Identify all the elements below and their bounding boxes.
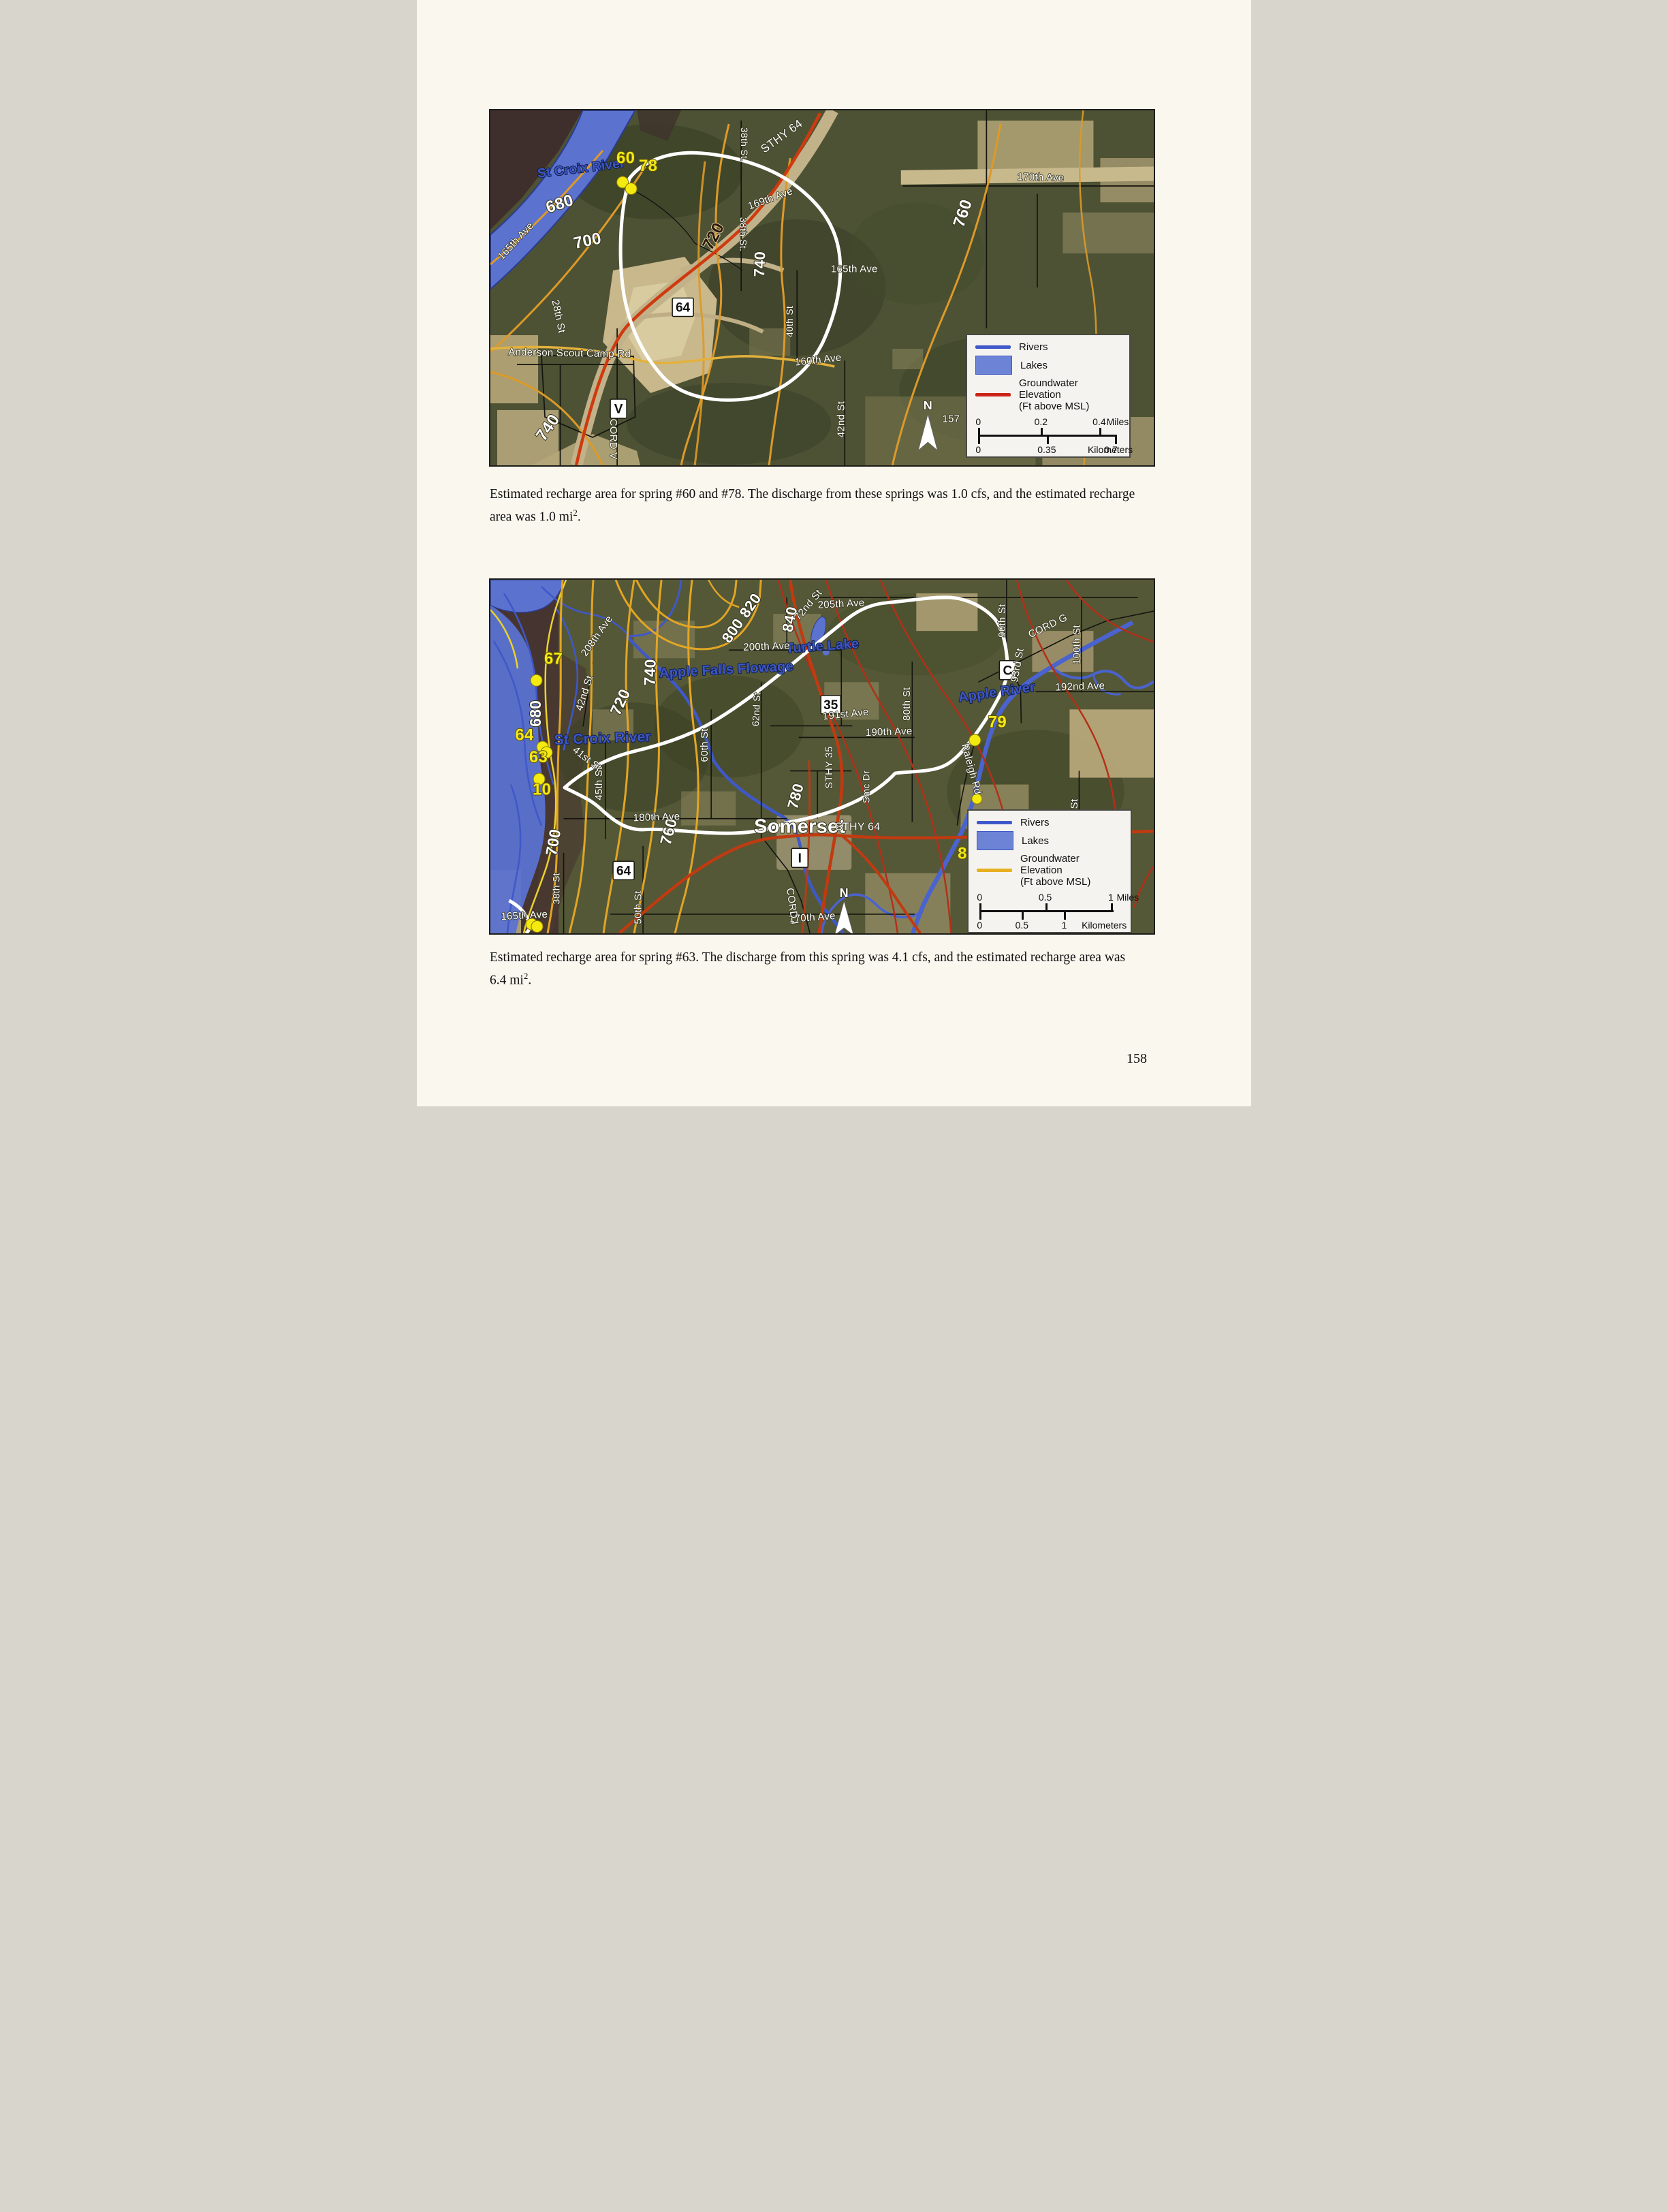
legend-rivers-row: Rivers — [975, 341, 1121, 353]
scale-km-mid: 0.35 — [1037, 444, 1056, 455]
svg-text:I: I — [798, 852, 802, 866]
map-label-157: 157 — [942, 414, 960, 425]
map-label-n: N — [924, 399, 932, 412]
figure-2-caption: Estimated recharge area for spring #63. … — [490, 948, 1145, 990]
map-label-100th-st: 100th St — [1071, 625, 1082, 665]
scale-km-labels: 0 0.35 0.7 Kilometers — [975, 444, 1121, 456]
scale-miles-labels: 0 0.2 0.4 Miles — [975, 416, 1121, 428]
map-label-40th-st: 40th St — [784, 306, 795, 337]
map-label-38th-st: 38th St — [551, 873, 562, 904]
map-label-64: 64 — [515, 726, 534, 744]
legend-rivers-label: Rivers — [1019, 341, 1048, 353]
map-label-8: 8 — [958, 844, 967, 862]
map-label-50th-st: 50th St — [633, 890, 644, 924]
route-shield-64: 64 — [672, 298, 693, 317]
scale-km-0: 0 — [977, 920, 982, 931]
scale-miles-end: 0.4 — [1092, 416, 1105, 427]
legend-groundwater-label: Groundwater Elevation (Ft above MSL) — [1020, 853, 1122, 888]
spring-dot — [531, 920, 543, 932]
figure-1-caption: Estimated recharge area for spring #60 a… — [490, 485, 1145, 527]
figure-1-caption-period: . — [578, 510, 581, 524]
page-number: 158 — [1127, 1051, 1147, 1067]
legend-lakes-label: Lakes — [1020, 360, 1048, 371]
route-shield-V: V — [610, 399, 627, 418]
map-label-67: 67 — [544, 650, 563, 668]
scale-miles-mid: 0.5 — [1039, 892, 1052, 903]
map-label-sthy-35: STHY 35 — [823, 746, 835, 788]
map-label-n: N — [840, 886, 849, 900]
map-label-90th-st: 90th St — [996, 604, 1008, 638]
svg-text:64: 64 — [616, 864, 631, 878]
map-label-10: 10 — [533, 781, 551, 799]
svg-text:V: V — [614, 403, 623, 417]
lakes-fill-swatch — [975, 356, 1012, 375]
legend-rivers-row: Rivers — [977, 817, 1122, 828]
scale-bar-line — [975, 428, 1121, 444]
groundwater-line-swatch — [975, 393, 1011, 396]
map-label-165th-ave: 165th Ave — [831, 264, 878, 275]
map-label-78: 78 — [639, 157, 657, 175]
figure-2-caption-period: . — [528, 973, 531, 987]
map-label-63: 63 — [529, 748, 548, 766]
map-label-740: 740 — [751, 251, 768, 277]
figure-2-caption-text: Estimated recharge area for spring #63. … — [490, 950, 1125, 988]
scale-km-unit: Kilometers — [1088, 444, 1133, 455]
rivers-line-swatch — [975, 345, 1011, 349]
scale-km-unit: Kilometers — [1082, 920, 1127, 931]
map-label-42nd-st: 42nd St — [835, 401, 847, 437]
map-label-680: 680 — [526, 700, 544, 727]
legend-lakes-row: Lakes — [977, 831, 1122, 850]
map-label-165th-ave: 165th Ave — [501, 909, 548, 923]
scale-miles-end: 1 — [1108, 892, 1114, 903]
map-label-38th-st-: 38th St. — [738, 217, 749, 251]
map-label-192nd-ave: 192nd Ave — [1055, 680, 1105, 694]
scanned-report-page: 64V St Croix River680700720740740760165t… — [417, 0, 1251, 1106]
scale-miles-mid: 0.2 — [1035, 416, 1048, 427]
route-shield-64: 64 — [613, 861, 634, 879]
lakes-fill-swatch — [977, 831, 1013, 850]
map-2-legend: Rivers Lakes Groundwater Elevation (Ft a… — [967, 809, 1132, 933]
map-label-170th-ave: 170th Ave — [1017, 171, 1064, 183]
scale-km-mid: 0.5 — [1016, 920, 1028, 931]
map-label-anderson-scout-camp-rd: Anderson Scout Camp Rd — [508, 346, 631, 360]
map-label-smc-dr: Smc Dr — [860, 770, 871, 803]
groundwater-label-line2: (Ft above MSL) — [1020, 876, 1122, 888]
scale-km-labels: 0 0.5 1 Kilometers — [977, 920, 1122, 931]
scale-miles-unit: Miles — [1116, 892, 1139, 903]
scale-miles-unit: Miles — [1107, 416, 1129, 427]
scale-miles-0: 0 — [975, 416, 981, 427]
map-label-somerset: Somerset — [754, 816, 845, 838]
figure-2-map: 35CI64 St Croix RiverApple Falls Flowage… — [489, 578, 1155, 935]
rivers-line-swatch — [977, 821, 1012, 824]
figure-1-map: 64V St Croix River680700720740740760165t… — [489, 109, 1155, 467]
groundwater-label-line2: (Ft above MSL) — [1019, 401, 1121, 412]
map-2-scale-bar: 0 0.5 1 Miles 0 0.5 1 Kilometers — [977, 892, 1122, 931]
map-label-38th-st-: 38th St. — [739, 127, 750, 161]
figure-1-caption-text: Estimated recharge area for spring #60 a… — [490, 487, 1135, 525]
map-label-80th-st: 80th St — [901, 687, 913, 721]
scale-miles-labels: 0 0.5 1 Miles — [977, 892, 1122, 903]
legend-groundwater-row: Groundwater Elevation (Ft above MSL) — [977, 853, 1122, 888]
groundwater-label-line1: Groundwater Elevation — [1019, 377, 1121, 401]
map-label-200th-ave: 200th Ave — [743, 640, 790, 653]
scale-bar-line — [977, 903, 1122, 920]
scale-km-0: 0 — [975, 444, 981, 455]
map-1-scale-bar: 0 0.2 0.4 Miles 0 0.35 0.7 Kilometers — [975, 416, 1121, 456]
map-label-cord-v: CORD V — [608, 419, 619, 460]
map-label-205th-ave: 205th Ave — [817, 597, 864, 611]
route-shield-I: I — [791, 848, 808, 867]
map-label-190th-ave: 190th Ave — [866, 726, 913, 738]
legend-rivers-label: Rivers — [1020, 817, 1050, 828]
groundwater-line-swatch — [977, 869, 1012, 872]
legend-groundwater-row: Groundwater Elevation (Ft above MSL) — [975, 377, 1121, 412]
scale-km-end: 1 — [1061, 920, 1067, 931]
map-label-60th-st: 60th St — [699, 728, 710, 762]
spring-dot — [625, 183, 637, 195]
svg-text:64: 64 — [676, 301, 691, 315]
map-label-740: 740 — [640, 659, 659, 686]
legend-groundwater-label: Groundwater Elevation (Ft above MSL) — [1019, 377, 1121, 412]
scale-miles-0: 0 — [977, 892, 982, 903]
spring-dot — [531, 674, 542, 686]
legend-lakes-row: Lakes — [975, 356, 1121, 375]
groundwater-label-line1: Groundwater Elevation — [1020, 853, 1122, 876]
map-label-62nd-st: 62nd St — [750, 692, 763, 727]
map-label-60: 60 — [616, 149, 635, 168]
map-label-180th-ave: 180th Ave — [633, 811, 680, 824]
map-label-79: 79 — [988, 713, 1007, 731]
map-label-sthy-64: STHY 64 — [835, 822, 880, 833]
map-1-legend: Rivers Lakes Groundwater Elevation (Ft a… — [966, 334, 1131, 458]
legend-lakes-label: Lakes — [1022, 835, 1049, 847]
